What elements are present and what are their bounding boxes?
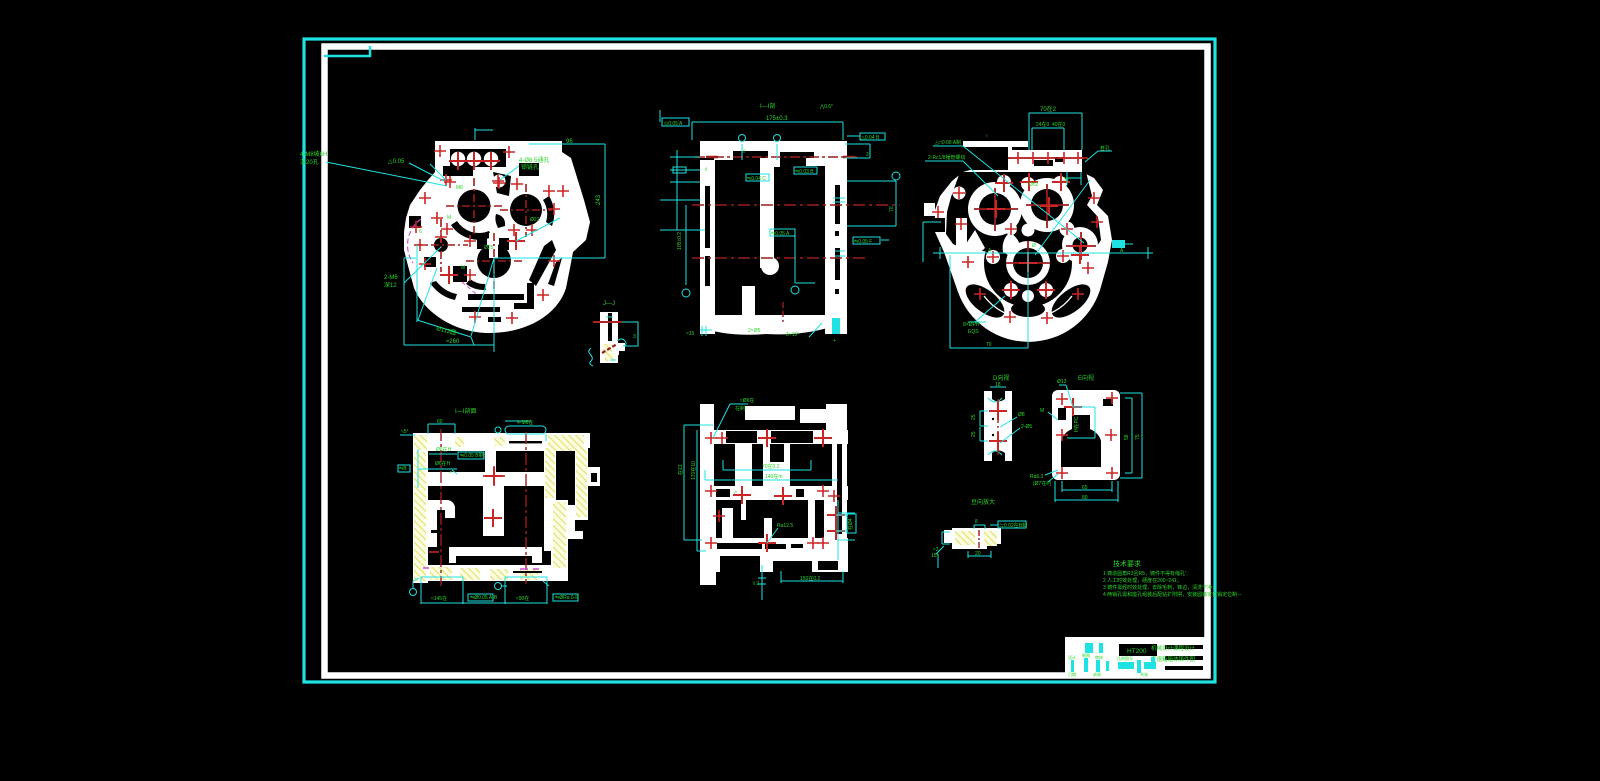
svg-text:Ø6在H: Ø6在H [436,446,452,453]
svg-text:105±0.2: 105±0.2 [677,232,683,250]
svg-text:≈145在: ≈145在 [431,595,447,602]
svg-text:M: M [447,215,451,221]
svg-text:≈Ø6在: ≈Ø6在 [740,397,754,404]
svg-text:豆向放大: 豆向放大 [971,498,995,506]
svg-text:变速箱箱体铸件图: 变速箱箱体铸件图 [1151,655,1196,663]
svg-text:I—I剖面: I—I剖面 [455,407,476,415]
svg-text:Ø25: Ø25 [484,245,494,251]
svg-text:3 铸件需经时效处理，去除毛刺，锋边，清洗干净；: 3 铸件需经时效处理，去除毛刺，锋边，清洗干净； [1103,584,1217,591]
svg-text:175±0.3: 175±0.3 [766,116,788,122]
svg-text:2-Rc1/8锤管螺纹: 2-Rc1/8锤管螺纹 [928,154,966,161]
svg-text:3×15°: 3×15° [786,332,799,338]
svg-text:4-M6在: 4-M6在 [517,419,533,426]
svg-text:日期: 日期 [1068,671,1076,677]
svg-text:↗: ↗ [448,470,452,476]
svg-text:⇋0.05 B制: ⇋0.05 B制 [460,452,484,459]
svg-text:20: 20 [975,551,981,557]
svg-text:比例图号: 比例图号 [1117,655,1133,661]
svg-text:2-M6: 2-M6 [384,275,398,281]
svg-text:⇋0.05 F: ⇋0.05 F [854,239,872,245]
svg-text:150在0.2: 150在0.2 [800,575,821,582]
svg-text:8×ØPH: 8×ØPH [963,322,980,328]
svg-text:Ra6.3: Ra6.3 [1030,474,1044,480]
svg-text:Ø8: Ø8 [1018,412,1025,418]
svg-text:≈5°: ≈5° [401,429,409,435]
svg-text:+: + [833,338,836,344]
svg-text:M: M [1040,408,1044,414]
svg-text:≈260: ≈260 [446,339,460,345]
svg-text:15°: 15° [931,553,939,559]
svg-text:I—I剖: I—I剖 [760,102,775,110]
svg-text:2: 2 [866,152,869,158]
svg-text:75: 75 [1135,434,1141,440]
svg-text:40在0: 40在0 [1052,121,1066,128]
svg-text:4-Ø8.5通孔: 4-Ø8.5通孔 [519,156,549,164]
svg-text:4-M8坡6H: 4-M8坡6H [300,150,327,158]
svg-text:Ø6在H: Ø6在H [435,460,451,467]
svg-text:140在m: 140在m [765,473,783,480]
svg-text:6: 6 [419,229,422,235]
svg-text:⇋0.05 A: ⇋0.05 A [771,231,790,237]
svg-text:↗: ↗ [733,490,737,496]
svg-text:⊙0.05 A: ⊙0.05 A [664,121,683,127]
svg-text:制图: 制图 [1082,652,1090,658]
svg-text:深20孔: 深20孔 [300,158,319,166]
svg-text:M: M [461,265,465,271]
svg-text:D向视: D向视 [993,374,1009,382]
svg-text:18: 18 [995,382,1001,388]
svg-text:⇋ØRa 0-P: ⇋ØRa 0-P [555,595,579,601]
svg-text:25: 25 [971,414,977,420]
svg-text:H在PC: H在PC [1073,416,1080,432]
svg-text:设计: 设计 [1068,654,1076,660]
svg-text:⇋0.04 C: ⇋0.04 C [747,176,766,182]
svg-text:70: 70 [986,342,992,348]
svg-text:⇋0.03 B: ⇋0.03 B [795,169,814,175]
svg-text:58: 58 [1124,434,1130,440]
svg-text:≈90在: ≈90在 [516,595,529,602]
svg-text:Ø21: Ø21 [530,217,540,223]
svg-text:在21: 在21 [677,464,684,475]
svg-text:Ø52: Ø52 [1029,182,1039,188]
svg-text:96: 96 [566,139,573,145]
svg-text:Ra12.5: Ra12.5 [777,523,793,529]
svg-text:70在0.2: 70在0.2 [762,463,780,470]
svg-text:170在10: 170在10 [690,461,697,480]
svg-text:⇳: ⇳ [704,167,708,173]
svg-text:HT200: HT200 [1127,648,1147,655]
svg-text:2-Ø5: 2-Ø5 [1021,424,1032,430]
svg-text:E向视: E向视 [1078,374,1094,382]
svg-text:30: 30 [1063,177,1069,183]
svg-text:J—J: J—J [603,301,615,307]
svg-text:(Ø7在P): (Ø7在P) [1033,480,1052,487]
svg-text:在Ø4: 在Ø4 [847,518,854,530]
svg-text:≈15: ≈15 [686,331,695,337]
svg-text:○: ○ [985,133,988,139]
svg-text:成绩: 成绩 [1093,671,1101,677]
svg-text:70: 70 [889,206,895,212]
svg-text:咎孔: 咎孔 [1100,145,1110,152]
svg-text:1.铸造圆角R3呂R5，铸件不得有缩孔′：: 1.铸造圆角R3呂R5，铸件不得有缩孔′： [1103,570,1191,577]
svg-text:审核: 审核 [1095,654,1103,660]
svg-text:8: 8 [975,519,978,525]
svg-text:24在0: 24在0 [1036,121,1050,128]
svg-text:⇳2: ⇳2 [752,581,759,587]
svg-text:EQS: EQS [968,329,979,335]
svg-text:在制: 在制 [735,405,745,412]
svg-text:机械设计课程设计: 机械设计课程设计 [1151,644,1196,652]
svg-text:△□0.08 A制: △□0.08 A制 [935,139,961,146]
svg-text:25: 25 [971,431,977,437]
svg-text:3: 3 [633,334,636,340]
svg-text:4 两销孔需和座孔组装后配钻扩附閈，安装圆锥定位销定位制－: 4 两销孔需和座孔组装后配钻扩附閈，安装圆锥定位销定位制－ [1103,591,1242,598]
svg-text:⇋Ø0.05 A-B: ⇋Ø0.05 A-B [470,595,498,601]
svg-text:243: 243 [596,194,602,205]
svg-text:深12: 深12 [384,281,397,289]
svg-text:80: 80 [1082,495,1088,501]
svg-text:Ø: Ø [1032,243,1036,249]
svg-text:⇋B: ⇋B [399,466,407,472]
svg-text:△0.05: △0.05 [388,159,405,165]
svg-text:△0.04 B: △0.04 B [861,135,880,141]
svg-text:技术要求: 技术要求 [1113,559,1141,568]
svg-text:M8: M8 [456,185,463,191]
svg-text:Ø13: Ø13 [1057,379,1067,385]
svg-text:65: 65 [1082,485,1088,491]
svg-text:70在2: 70在2 [1040,105,1057,113]
svg-text:⇳: ⇳ [742,149,746,155]
svg-text:⇋0.02在B制: ⇋0.02在B制 [999,522,1027,529]
svg-text:共张: 共张 [1140,671,1148,677]
svg-text:2 人工时效处理，硬度在200~241；: 2 人工时效处理，硬度在200~241； [1103,577,1182,584]
svg-text:2×Ø5: 2×Ø5 [748,328,761,334]
svg-text:锁链孔: 锁链孔 [521,163,539,171]
svg-text:⋀0.6°: ⋀0.6° [819,104,833,110]
svg-text:60: 60 [437,419,443,425]
